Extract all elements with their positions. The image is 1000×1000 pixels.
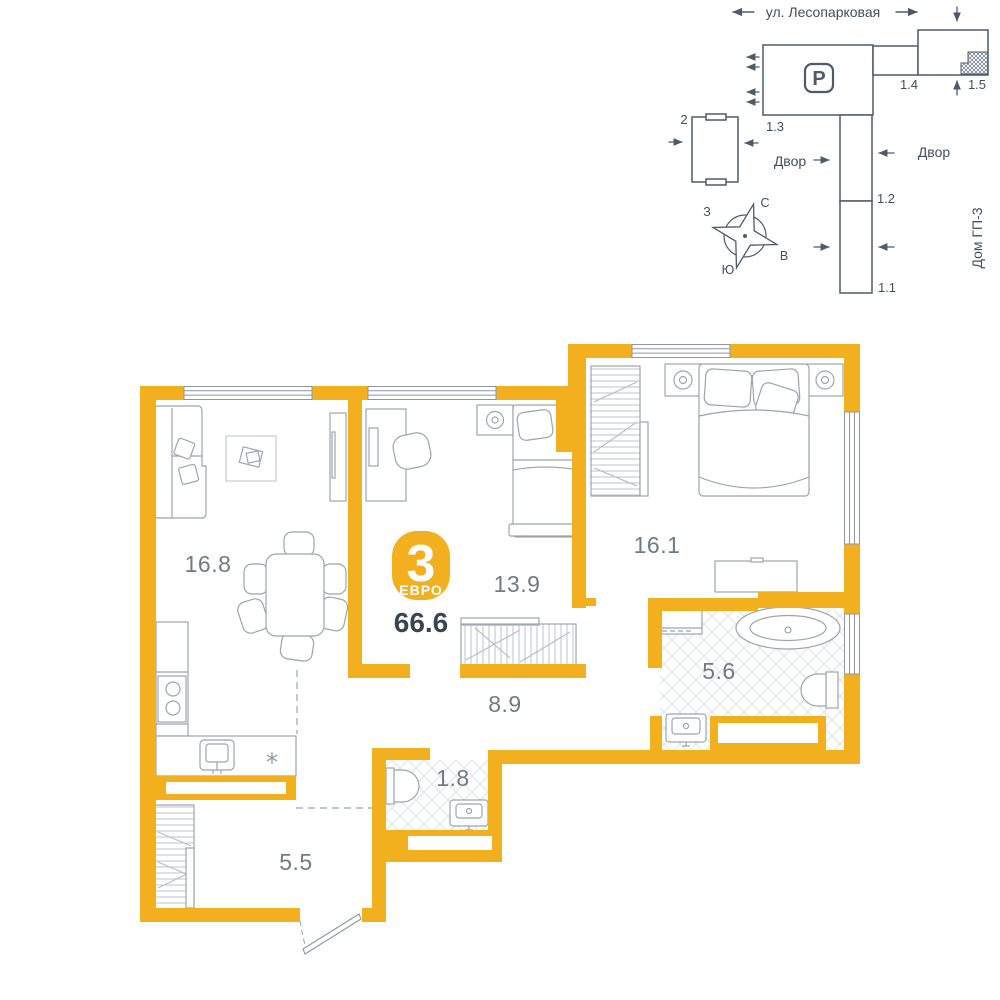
room-label-wc: 1.8	[436, 765, 469, 791]
wall-segment	[758, 592, 860, 608]
adjacent-house-label: Дом ГП-3	[969, 207, 985, 268]
wall-segment	[348, 400, 362, 666]
apartment-plan-canvas: ул. Лесопарковая Р	[0, 0, 1000, 1000]
bath-niche	[718, 723, 818, 743]
building-1-4-label: 1.4	[900, 77, 918, 92]
wall-segment	[362, 908, 386, 922]
sofa-pillow	[178, 464, 199, 485]
nightstand	[665, 364, 701, 396]
svg-text:Р: Р	[812, 68, 825, 90]
dining-chair	[236, 597, 271, 635]
courtyard-right-label: Двор	[918, 144, 951, 160]
window	[845, 412, 860, 544]
building-1-5-label: 1.5	[968, 77, 986, 92]
site-plan: ул. Лесопарковая Р	[669, 4, 988, 295]
nightstand	[477, 405, 513, 435]
bed-footboard	[509, 524, 582, 536]
building-2-outline	[692, 117, 738, 182]
dresser	[715, 561, 797, 592]
building-1-1-label: 1.1	[878, 280, 896, 295]
wall-segment	[372, 748, 386, 862]
bed-pillow	[516, 409, 554, 441]
sofa	[154, 406, 206, 518]
wall-segment	[140, 908, 300, 922]
wall-segment	[140, 386, 156, 922]
building-1-1-outline	[840, 201, 872, 293]
door-jamb	[586, 598, 596, 606]
apartment-type-badge: 3 ЕВРО	[392, 531, 450, 600]
wardrobe-side-panel	[640, 422, 648, 496]
dining-table	[266, 554, 324, 636]
room-label-bedroom2: 13.9	[494, 571, 541, 597]
room-label-hallway: 8.9	[488, 691, 521, 717]
bathtub	[736, 607, 840, 649]
wall-segment	[650, 716, 662, 750]
room-label-living: 16.8	[185, 551, 232, 577]
door-leaf	[303, 914, 361, 954]
courtyard-left-label: Двор	[774, 153, 807, 169]
building-1-2-label: 1.2	[877, 191, 895, 206]
street-label: ул. Лесопарковая	[766, 4, 880, 20]
compass-north-label: С	[760, 196, 769, 210]
wall-segment	[572, 400, 586, 608]
wall-segment	[488, 750, 860, 764]
building-2-label: 2	[680, 112, 687, 127]
window	[632, 345, 730, 358]
zone-dashed-lines	[296, 670, 372, 808]
toilet-tank	[386, 768, 394, 804]
building-1-4-outline	[873, 46, 918, 75]
wardrobe-side-panel	[186, 848, 194, 908]
window	[368, 387, 496, 400]
window	[184, 387, 312, 400]
duct-niche	[408, 836, 492, 850]
wall-segment	[844, 344, 860, 764]
dining-chair	[322, 564, 346, 594]
window	[845, 614, 860, 674]
wall-segment	[648, 598, 758, 611]
building-2-notch-top	[706, 114, 726, 120]
building-1-3-label: 1.3	[766, 119, 784, 134]
compass-east-label: В	[780, 249, 788, 263]
dining-chair	[284, 532, 314, 556]
building-2-notch-bottom	[706, 179, 726, 185]
room-label-entry: 5.5	[279, 849, 312, 875]
dresser-handle	[751, 558, 763, 562]
room-label-bedroom: 16.1	[634, 532, 681, 558]
dining-chair	[244, 564, 268, 594]
bedroom-furniture	[591, 364, 843, 592]
compass-west-label: З	[703, 205, 711, 219]
door-swing-arc	[300, 921, 307, 951]
badge-format-label: ЕВРО	[399, 582, 443, 598]
duct-niche	[166, 782, 286, 794]
compass-icon: С З В Ю	[703, 196, 788, 277]
room-label-bathroom: 5.6	[702, 658, 735, 684]
building-1-2-outline	[840, 115, 872, 201]
floor-plan: 16.8 13.9 16.1 5.6 8.9 1.8 5.5 3 ЕВРО 66…	[140, 344, 860, 954]
wall-segment	[348, 664, 410, 678]
bed-pillow	[704, 368, 752, 407]
living-room-furniture	[154, 406, 349, 776]
bed-blanket	[699, 410, 809, 488]
coffee-table-item	[246, 451, 260, 463]
toilet-tank	[826, 672, 838, 708]
wall-segment	[460, 664, 586, 678]
compass-south-label: Ю	[722, 263, 735, 277]
nightstand	[807, 364, 843, 396]
desk-monitor	[369, 428, 378, 466]
tv-screen	[332, 432, 335, 478]
entry-furniture	[155, 805, 194, 909]
total-area-label: 66.6	[394, 607, 449, 638]
entry-door	[300, 914, 361, 954]
